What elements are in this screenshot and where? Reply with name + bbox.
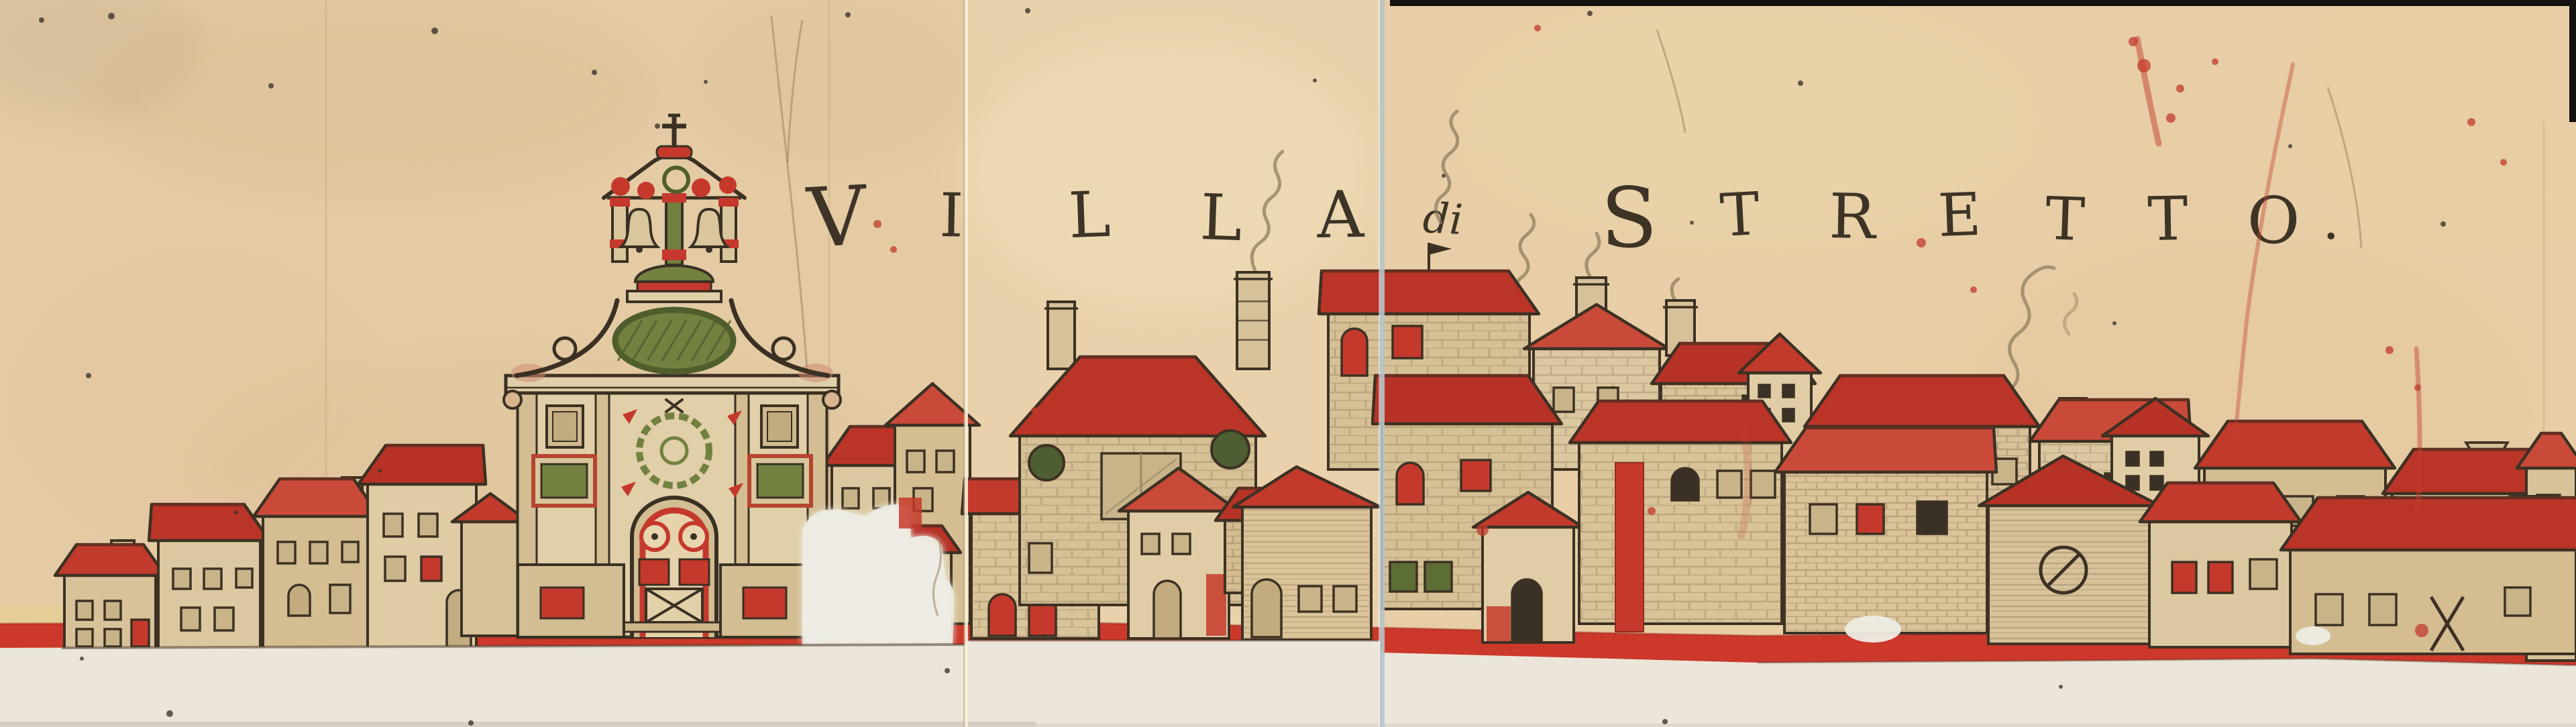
window (1393, 326, 1422, 358)
house-wall (462, 522, 519, 636)
window (1461, 460, 1491, 491)
window (419, 514, 437, 537)
top-black-edge (1390, 0, 2576, 6)
ink-speck (1662, 719, 1668, 724)
ink-speck (86, 373, 91, 378)
ink-speck (268, 83, 274, 89)
red-speck (1031, 407, 1038, 414)
window (204, 569, 221, 589)
right-black-edge (2569, 0, 2576, 122)
red-speck (2467, 118, 2475, 126)
ink-speck (592, 70, 597, 75)
window (1425, 562, 1452, 592)
red-speck (2129, 37, 2138, 46)
ink-speck (2112, 321, 2116, 325)
window (873, 488, 890, 508)
chimney (1048, 302, 1075, 369)
house (55, 541, 165, 649)
title-letter: S (1601, 170, 1658, 267)
base-red-square (541, 588, 584, 618)
round-window (1029, 445, 1064, 480)
roof (2281, 498, 2576, 550)
bell-clapper (706, 246, 712, 253)
roof (55, 545, 165, 575)
base-red-square (743, 588, 786, 618)
bell-plinth (627, 291, 721, 302)
window (236, 569, 252, 588)
bell-column (721, 198, 736, 262)
roof (1373, 376, 1562, 424)
red-speck (873, 220, 881, 228)
ink-speck (378, 469, 382, 473)
ink-speck (655, 123, 660, 129)
ink-speck (1587, 11, 1593, 16)
door (989, 594, 1016, 636)
ink-speck (108, 13, 115, 19)
house (2140, 483, 2301, 647)
ink-speck (468, 720, 474, 726)
window (907, 451, 924, 472)
window (2151, 452, 2163, 465)
window (1672, 468, 1699, 500)
window (173, 569, 191, 589)
portal-step (624, 622, 724, 632)
portal-red-square (639, 559, 669, 585)
green-panel (541, 464, 587, 498)
red-speck (890, 246, 897, 253)
window (2127, 476, 2139, 490)
canopy-red-knob (692, 178, 710, 197)
window (2250, 559, 2277, 589)
window (2151, 476, 2163, 490)
red-fragment-above-patch (899, 498, 922, 528)
window (2127, 452, 2139, 465)
center-post-red-base (662, 249, 686, 260)
door (1154, 581, 1181, 638)
ink-speck (1690, 221, 1694, 225)
title-letter: L (1199, 181, 1243, 256)
window (76, 629, 93, 647)
portal-rosette-center (651, 533, 658, 540)
ink-speck (845, 12, 851, 17)
small-damage-patch (2296, 626, 2330, 645)
house (254, 478, 380, 649)
facade-niche-inner (553, 412, 577, 441)
roof (1570, 401, 1791, 443)
title-letter: V (804, 168, 870, 266)
red-speck (2414, 384, 2421, 391)
sheet-seam (1380, 0, 1385, 727)
title-letter: I (939, 180, 964, 251)
window (1390, 562, 1417, 592)
ink-speck (1025, 8, 1030, 13)
house-wall (263, 516, 370, 649)
window (2172, 562, 2196, 593)
red-speck (2415, 624, 2428, 637)
center-post-red-cap (662, 193, 686, 203)
scanned-map-page: VILLA di STRETTO. VILLAdiSTRETTO. (0, 0, 2576, 727)
ink-speck (234, 510, 238, 514)
title-letter: . (2322, 189, 2339, 251)
window (342, 542, 358, 562)
window (76, 601, 93, 620)
cross-cushion (657, 146, 692, 158)
bottom-edge-shadow (1036, 724, 2576, 727)
roof (2140, 483, 2301, 522)
house (1775, 428, 1996, 633)
red-speck (2212, 58, 2218, 65)
window (215, 608, 233, 630)
window (2369, 594, 2396, 625)
ink-speck (2059, 685, 2063, 689)
roof (1319, 271, 1539, 314)
wall-texture (1784, 472, 1987, 633)
window (1759, 385, 1770, 397)
window (1299, 586, 1322, 612)
window (1717, 471, 1741, 498)
red-speck (2176, 85, 2184, 93)
window (1142, 534, 1159, 554)
window (1334, 586, 1356, 612)
ink-speck (2440, 221, 2446, 227)
red-paint-patch (1206, 574, 1226, 636)
window (330, 585, 350, 613)
canopy-red-knob (611, 177, 630, 196)
window (1342, 329, 1367, 376)
red-speck (2137, 59, 2151, 72)
wall-texture (1988, 506, 2151, 644)
ink-speck (1442, 174, 1446, 178)
ink-speck (80, 657, 84, 661)
bottom-edge-shadow (0, 722, 1036, 727)
house (1570, 401, 1791, 632)
window (1783, 409, 1794, 421)
paper-tone-blob (966, 40, 1368, 309)
window (421, 557, 441, 581)
canopy-red-knob (637, 182, 655, 199)
window (1173, 534, 1190, 554)
village-panorama-canvas: VILLAdiSTRETTO. (0, 0, 2576, 727)
ink-speck (431, 27, 438, 34)
cornice-curl (504, 391, 521, 408)
window (1810, 504, 1837, 534)
title-letter: E (1937, 180, 1982, 250)
title-letter: di (1421, 193, 1464, 244)
door (288, 585, 310, 616)
canopy-red-knob (719, 176, 737, 194)
portal-red-square (680, 559, 709, 585)
red-speck (1648, 507, 1656, 515)
small-damage-patch (1845, 616, 1901, 642)
church-cornice (506, 376, 839, 393)
window (1029, 543, 1052, 573)
paper-tone-blob (698, 0, 966, 161)
red-speck (2385, 346, 2394, 354)
portal-rosette-center (690, 533, 697, 540)
left-yellow-band (0, 605, 63, 625)
window (2316, 594, 2343, 625)
bell-clapper (636, 246, 643, 253)
window (105, 629, 121, 647)
title-letter: O (2245, 182, 2302, 260)
title-letter: T (2044, 184, 2086, 254)
pedestal-red-band (637, 282, 711, 291)
bell-column (612, 198, 627, 262)
roof (1805, 376, 2039, 427)
ink-speck (1313, 78, 1317, 82)
ink-speck (704, 80, 708, 84)
red-speck (1477, 524, 1489, 536)
window (310, 542, 327, 563)
title-letter: L (1067, 178, 1112, 253)
facade-niche-inner (767, 412, 792, 441)
door (131, 620, 149, 647)
round-window (1212, 431, 1249, 468)
red-speck (2500, 159, 2507, 166)
window (2208, 562, 2233, 593)
window (843, 488, 859, 508)
window (1857, 504, 1884, 534)
ink-speck (166, 710, 173, 717)
column-capital-red (718, 198, 739, 207)
cornice-curl (823, 391, 841, 408)
sheet-seam (965, 0, 968, 727)
red-paint-patch (1487, 606, 1511, 641)
ink-speck (39, 17, 44, 23)
window (384, 514, 402, 537)
door (1252, 579, 1281, 637)
red-speck (1970, 286, 1977, 293)
window (1397, 463, 1424, 504)
ink-speck (1798, 80, 1803, 86)
window (1917, 502, 1947, 534)
house (149, 504, 270, 649)
green-panel (757, 464, 803, 498)
house-wall (158, 541, 260, 649)
window (181, 608, 200, 630)
window (278, 542, 295, 563)
column-capital-red (610, 198, 630, 207)
window (385, 557, 405, 581)
title-letter: R (1829, 180, 1878, 253)
window (105, 601, 121, 620)
window (1554, 388, 1574, 412)
roof (2195, 421, 2395, 468)
door (1512, 579, 1542, 641)
window (2505, 588, 2530, 616)
window (936, 451, 954, 472)
red-speck (2166, 113, 2176, 123)
ink-speck (2288, 144, 2292, 148)
ink-speck (945, 668, 950, 673)
red-speck (1917, 238, 1926, 247)
red-speck (1534, 25, 1541, 32)
window (1783, 385, 1794, 397)
title-letter: T (1719, 179, 1762, 250)
title-letter: T (2147, 184, 2189, 255)
title-letter: A (1316, 177, 1365, 253)
roof (1775, 428, 1996, 472)
window (1751, 471, 1775, 498)
red-painted-chimney (1615, 463, 1644, 632)
